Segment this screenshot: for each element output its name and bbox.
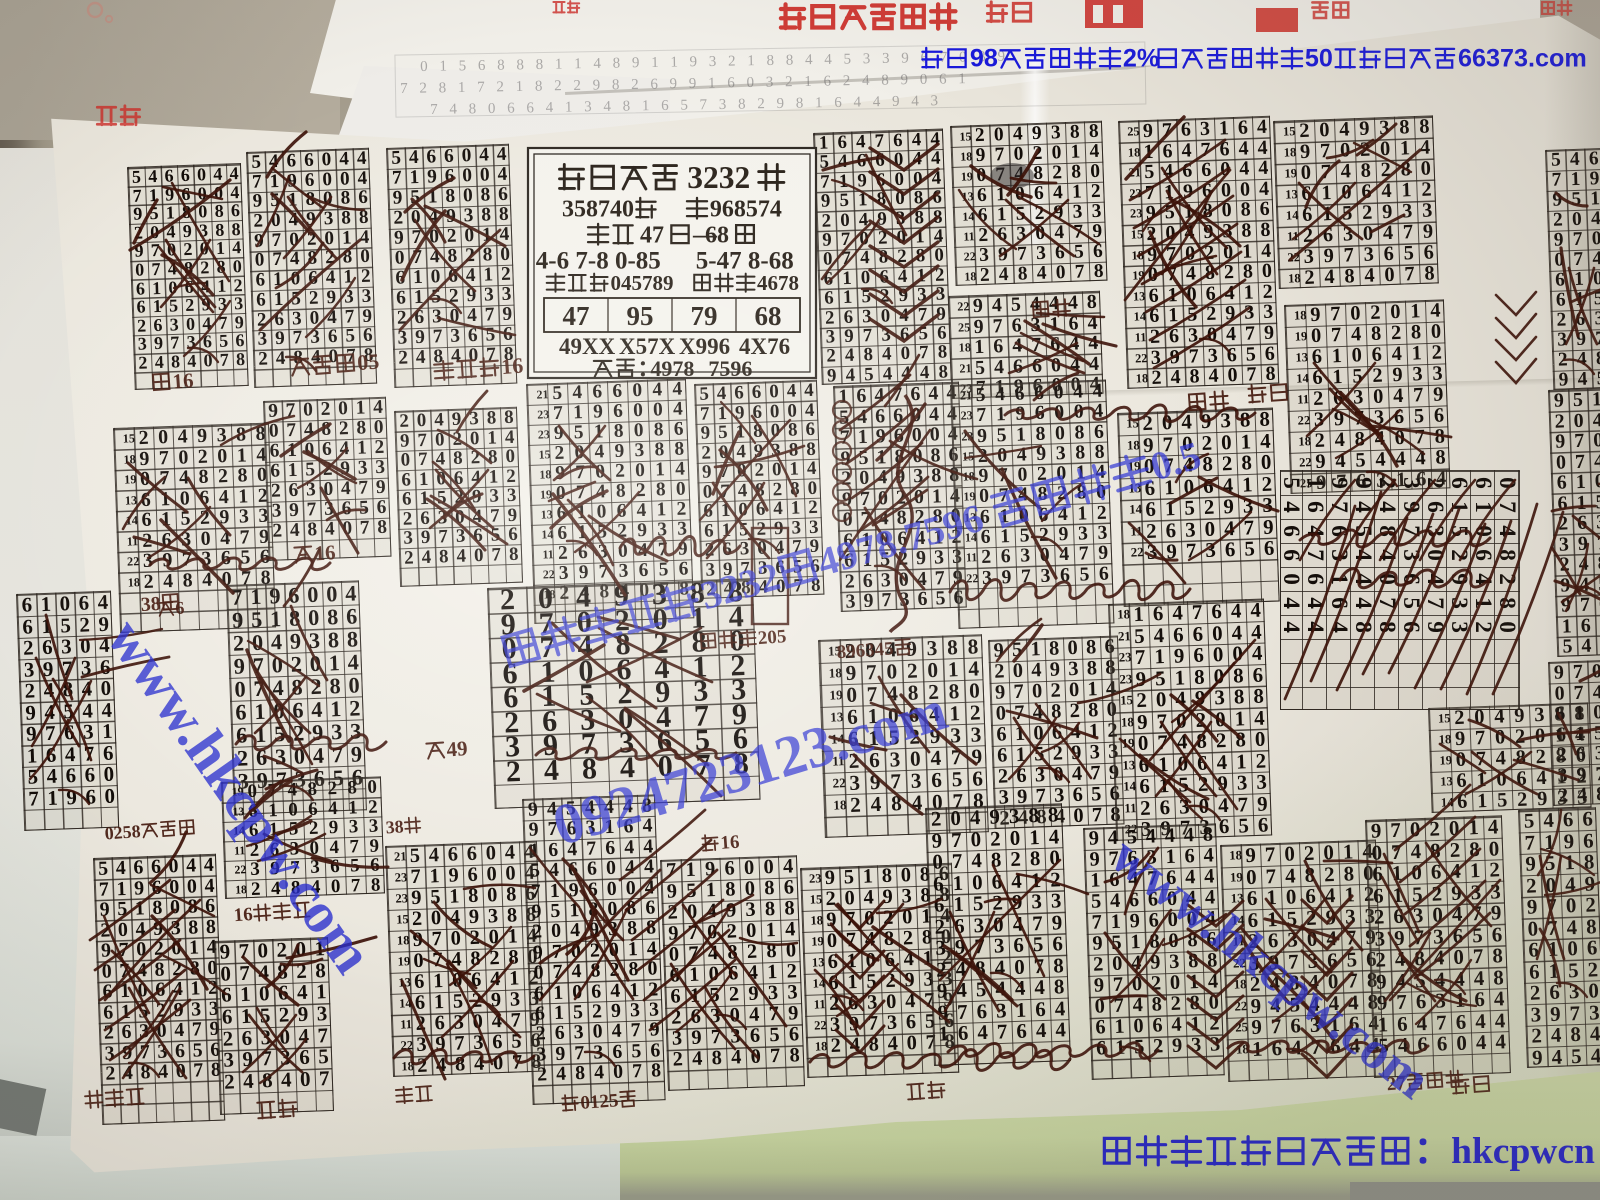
svg-text:16: 16 <box>500 353 524 379</box>
svg-text:4678: 4678 <box>757 271 799 295</box>
svg-text:3232: 3232 <box>696 553 785 618</box>
svg-text:47: 47 <box>640 223 664 249</box>
svg-text:0924723123.com: 0924723123.com <box>545 677 954 858</box>
svg-text:05: 05 <box>356 349 380 375</box>
svg-text:205: 205 <box>757 626 787 649</box>
svg-text:4978: 4978 <box>650 356 694 381</box>
svg-text:16: 16 <box>233 904 253 926</box>
svg-text:968574: 968574 <box>710 197 782 223</box>
svg-text:68: 68 <box>755 301 782 331</box>
svg-text:16: 16 <box>720 832 740 854</box>
svg-text:16: 16 <box>172 368 195 393</box>
svg-text:95: 95 <box>627 301 654 331</box>
svg-text:98: 98 <box>970 45 998 73</box>
svg-text:47: 47 <box>563 301 590 331</box>
svg-text:7596: 7596 <box>708 356 752 381</box>
svg-text:49XX: 49XX <box>559 334 616 359</box>
svg-text:49: 49 <box>446 736 469 761</box>
svg-text:16: 16 <box>314 540 337 565</box>
svg-text:66373.com: 66373.com <box>1458 45 1587 73</box>
svg-text:0.5: 0.5 <box>1145 432 1205 489</box>
svg-text:0258: 0258 <box>104 821 141 843</box>
svg-text:68: 68 <box>705 223 729 249</box>
svg-text:50: 50 <box>1305 45 1333 73</box>
svg-text:358740: 358740 <box>562 197 634 223</box>
svg-text:79: 79 <box>691 301 718 331</box>
svg-text:www.hkcpw.com: www.hkcpw.com <box>94 607 386 985</box>
svg-text:0125: 0125 <box>580 1090 619 1114</box>
svg-text:7 4 8 0 6 6 4 1 3 4 8 1 6: 7 4 8 0 6 6 4 1 3 4 8 1 6 5 7 3 8 2 9 8 … <box>430 93 942 118</box>
svg-text:：hkcpwcn: ：hkcpwcn <box>1414 1131 1595 1172</box>
svg-text:896345: 896345 <box>836 638 894 663</box>
svg-text:3232: 3232 <box>687 160 750 195</box>
svg-text:6: 6 <box>175 598 185 619</box>
svg-text:045789: 045789 <box>611 271 674 295</box>
svg-text:38: 38 <box>385 816 404 837</box>
svg-text:2%: 2% <box>1123 45 1159 73</box>
